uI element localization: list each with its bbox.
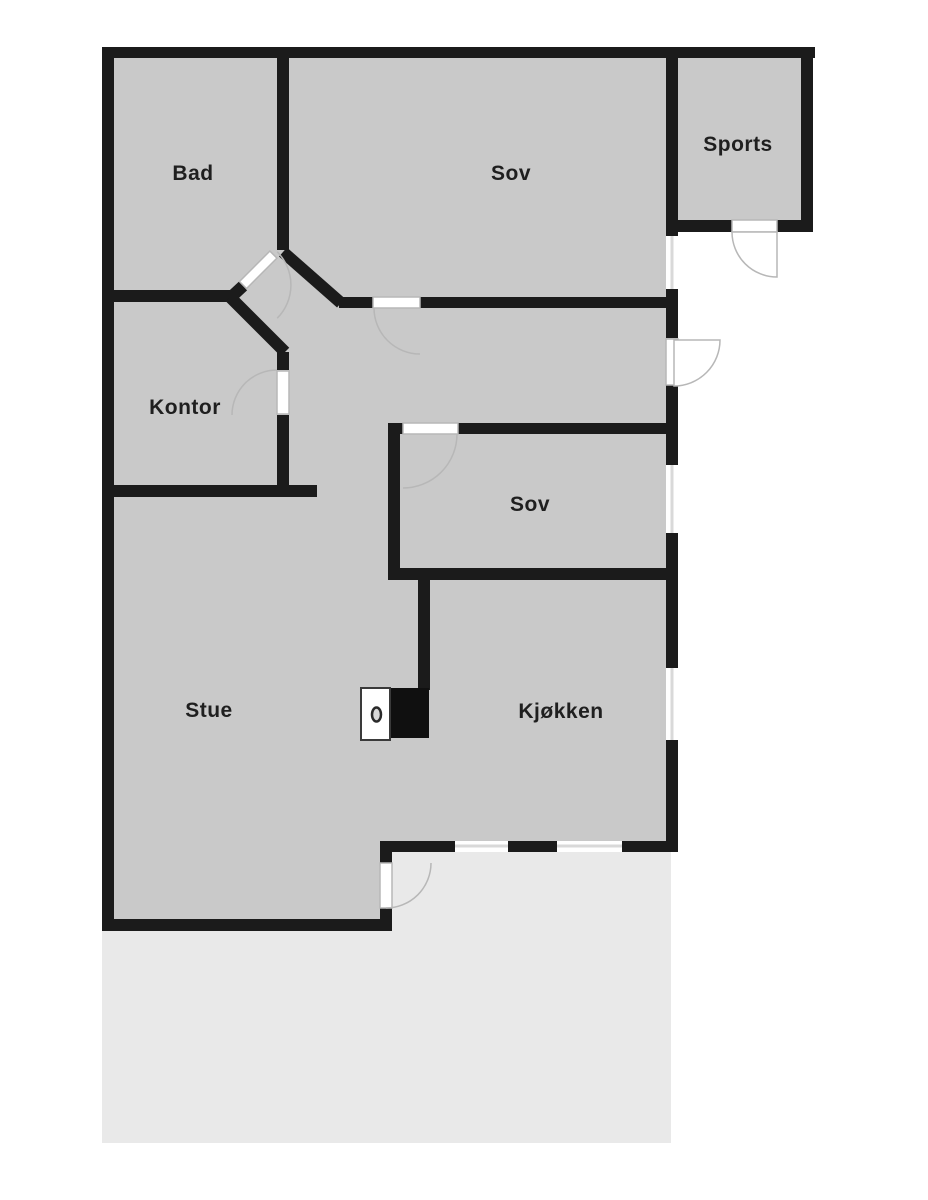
wall-kontor-bottom	[114, 485, 317, 497]
door-hall-exterior	[666, 339, 720, 386]
wall-sov2-top-seg2	[458, 423, 668, 434]
wall-bad-bottom	[114, 290, 232, 302]
room-label-sports: Sports	[703, 133, 773, 156]
room-label-sov1: Sov	[491, 162, 531, 185]
wall-kontor-right-seg1	[277, 352, 289, 370]
door-sov2-slab	[403, 423, 458, 434]
door-sports-slab	[732, 220, 777, 232]
wall-sov2-bottom	[388, 568, 678, 580]
room-label-stue: Stue	[185, 699, 233, 722]
wall-right-seg2	[666, 289, 678, 338]
wall-top	[102, 47, 815, 58]
fireplace-stove-symbol	[361, 688, 429, 740]
room-label-kontor: Kontor	[149, 396, 221, 419]
wall-sports-right	[801, 47, 813, 232]
door-hall-sov1-slab	[373, 297, 420, 308]
stove-black-block	[390, 688, 429, 738]
wall-left	[102, 47, 114, 931]
floor-plan-page: Bad Sov Sports Kontor Sov Stue Kjøkken	[0, 0, 928, 1200]
wall-sov2-left	[388, 423, 400, 580]
wall-step-lower	[380, 908, 392, 931]
door-sports-pie	[732, 232, 777, 277]
wall-stue-kitchen-divider	[418, 580, 430, 690]
wall-sports-bottom-seg1	[666, 220, 732, 232]
wall-bad-sov-divider	[277, 58, 289, 250]
wall-kontor-right-seg2	[277, 415, 289, 497]
room-label-sov2: Sov	[510, 493, 550, 516]
stove-ring-icon	[372, 708, 381, 722]
wall-sports-bottom-seg2	[777, 220, 813, 232]
wall-kitchen-bottom-seg2	[508, 841, 557, 852]
room-label-bad: Bad	[172, 162, 213, 185]
wall-sov1-bottom-seg2	[420, 297, 678, 308]
wall-kitchen-bottom-seg1	[380, 841, 455, 852]
door-sports	[732, 220, 777, 277]
wall-stue-bottom	[102, 919, 392, 931]
room-label-kjokken: Kjøkken	[518, 700, 603, 723]
door-terrace-slab	[380, 863, 392, 908]
wall-right-seg5	[666, 740, 678, 852]
door-hall-exterior-pie	[674, 340, 720, 386]
floor-plan-drawing: Bad Sov Sports Kontor Sov Stue Kjøkken	[0, 0, 928, 1200]
wall-sov1-bottom-seg1	[339, 297, 373, 308]
wall-right-seg1	[666, 47, 678, 236]
door-kontor-slab	[277, 371, 289, 414]
wall-right-seg4	[666, 533, 678, 668]
